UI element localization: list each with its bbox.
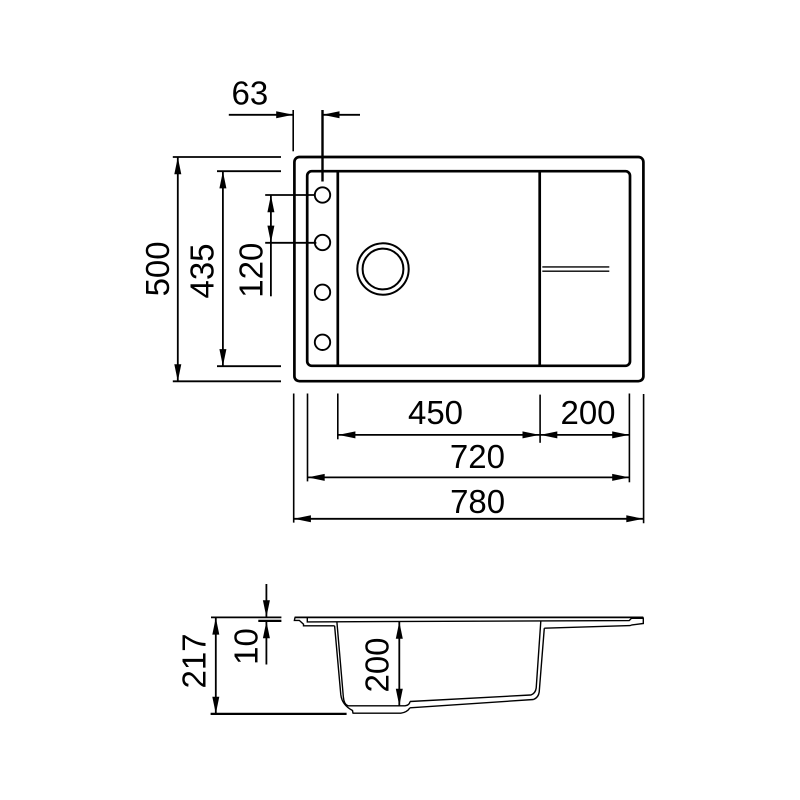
svg-text:120: 120 <box>233 243 270 298</box>
svg-text:200: 200 <box>560 394 615 431</box>
svg-text:435: 435 <box>184 243 221 298</box>
svg-text:780: 780 <box>450 483 505 520</box>
svg-text:10: 10 <box>228 628 265 665</box>
svg-text:500: 500 <box>139 241 176 296</box>
svg-text:720: 720 <box>450 438 505 475</box>
svg-text:450: 450 <box>408 394 463 431</box>
svg-text:200: 200 <box>359 637 396 692</box>
svg-text:63: 63 <box>232 75 269 112</box>
svg-text:217: 217 <box>175 633 212 688</box>
